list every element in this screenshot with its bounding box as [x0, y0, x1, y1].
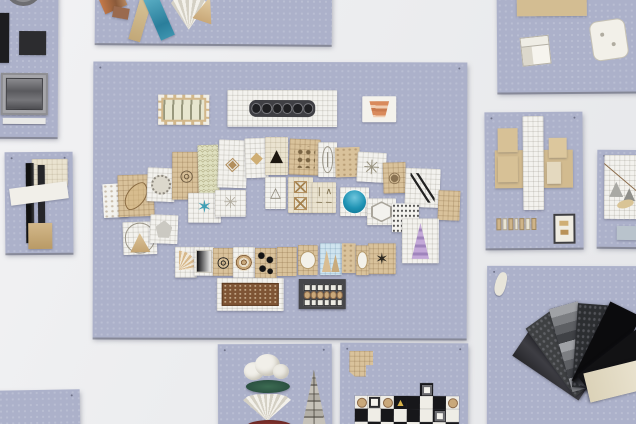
card-lattice	[197, 144, 220, 195]
diagonal-lines	[410, 173, 436, 202]
pentagon-shape	[155, 220, 172, 239]
teal-strip	[142, 0, 175, 41]
pm-symbols: |∧−−	[315, 188, 332, 208]
spool-cell	[336, 299, 343, 306]
wood-block	[28, 223, 52, 249]
spool-5	[336, 291, 343, 298]
checker-spool-icon	[356, 397, 366, 407]
grille-tray	[3, 118, 46, 124]
mini-mark-1	[559, 220, 568, 226]
checkerboard: ▲	[355, 383, 459, 424]
spiral-circle	[235, 254, 253, 272]
pin-dot-0	[493, 271, 495, 273]
strip-cypress	[296, 370, 332, 424]
template-vertical-strip	[522, 116, 544, 210]
pin-dot-1	[458, 67, 460, 69]
pm-sym-3: −	[325, 199, 333, 208]
gasket-bore-1	[262, 103, 272, 114]
x-box-1	[294, 197, 307, 210]
gasket-bore-4	[292, 103, 302, 114]
pin-dot-0	[346, 348, 348, 350]
circuit-panel	[0, 13, 9, 63]
card-right-edge	[437, 190, 460, 221]
pin-dot-1	[459, 348, 461, 350]
mini-square-5	[526, 218, 531, 230]
pinboard-top-color-strips	[95, 0, 333, 45]
gray-sail-1	[609, 182, 623, 197]
card-tan-small	[277, 247, 297, 276]
card-buttons	[288, 138, 320, 175]
gallery-wall-photo: ◎◈◆▲✳◉✶✳△|∧−−✶◎▲	[0, 0, 636, 424]
card-teal-star-glyph: ✶	[197, 199, 212, 217]
checker-cell	[420, 383, 433, 396]
plate-hole-1	[599, 32, 604, 37]
mini-square-0	[496, 218, 501, 230]
card-plus-minus: |∧−−	[312, 182, 336, 213]
template-tab-3	[549, 138, 567, 158]
card-teal-orb	[340, 187, 369, 216]
checker-cell	[433, 396, 446, 409]
framed-mini-card	[553, 214, 575, 244]
card-pentagon	[149, 214, 178, 244]
card-diamond-glyph: ◆	[250, 150, 263, 166]
sail-sketch-sheet	[604, 155, 636, 219]
card-cone: △	[265, 177, 286, 209]
card-ring-frame-glyph: ◎	[180, 168, 194, 184]
white-oval	[357, 251, 368, 269]
small-blue-item	[617, 226, 636, 240]
mini-square-3	[514, 218, 519, 230]
gasket-bore-5	[303, 103, 313, 114]
basket-sketch-card	[362, 96, 396, 122]
spool-4	[330, 291, 337, 298]
purple-tree-shape	[409, 223, 432, 259]
metal-grille	[1, 73, 48, 115]
pinboard-top-right-templates	[497, 0, 636, 93]
pinboard-fan-strips-board	[487, 266, 636, 424]
card-blue-sails	[320, 243, 342, 275]
card-x-boxes	[288, 177, 313, 213]
spool-2	[317, 291, 324, 298]
pinboard-checker-board: ▲	[340, 343, 469, 424]
pyramid	[130, 233, 151, 253]
card-diagonal-lines	[404, 168, 440, 208]
card-tan-gear-glyph: ◉	[388, 170, 402, 185]
checker-cell	[368, 396, 381, 409]
card-scribble-star: ✶	[368, 243, 396, 274]
dots-grid	[293, 146, 315, 168]
gradient-square	[196, 249, 212, 273]
mini-square-2	[508, 218, 513, 230]
cloud-tree-top	[242, 354, 290, 382]
checker-cell	[394, 409, 407, 422]
mini-squares-strip	[496, 218, 536, 230]
sail-2	[331, 255, 339, 273]
pm-sym-1: ∧	[325, 188, 333, 197]
fan-tree-top	[243, 394, 291, 421]
card-bullseye-glyph: ◎	[217, 254, 230, 269]
card-knot: ◈	[217, 139, 248, 188]
checker-cell	[381, 396, 394, 409]
pinboard-sail-sheet-board	[597, 150, 636, 247]
checker-cell	[355, 409, 368, 422]
checker-cell	[407, 409, 420, 422]
dark-disc	[4, 0, 42, 6]
red-base-oval	[246, 420, 292, 424]
pin-dot-0	[490, 117, 492, 119]
hexagon-inner	[373, 203, 391, 221]
pin-dot-0	[224, 349, 226, 351]
card-dark-triangle: ▲	[265, 137, 288, 175]
template-tab-1	[498, 128, 518, 152]
hexagon-outline	[371, 201, 392, 222]
checker-cell: ▲	[394, 396, 407, 409]
card-cone-glyph: △	[270, 186, 281, 200]
spool-cell	[336, 284, 343, 291]
big-dots	[257, 250, 276, 275]
grille-screen	[6, 78, 43, 110]
mini-square-1	[502, 218, 507, 230]
tan-plate	[517, 0, 587, 16]
rounded-plate	[588, 17, 629, 62]
gear-shape	[150, 174, 172, 196]
checker-cell	[446, 409, 459, 422]
card-pinwheel-glyph: ✳	[223, 195, 237, 212]
spool-grid-strip	[299, 279, 346, 309]
spool-0	[304, 291, 311, 298]
plate-hole-2	[611, 42, 616, 47]
engine-gasket-strip	[227, 90, 337, 127]
card-purple-tree	[402, 218, 439, 263]
card-turbine-glyph: ✳	[363, 157, 381, 178]
chip-cluster	[19, 31, 46, 55]
checker-cell	[433, 409, 446, 422]
pin-dot-1	[573, 117, 575, 119]
teal-orb	[343, 190, 366, 213]
mini-square-4	[520, 218, 525, 230]
checker-spool-icon	[382, 397, 392, 407]
pinboard-bottom-left-blank	[0, 389, 80, 424]
oval-outline	[322, 146, 334, 173]
checker-frame-icon	[434, 411, 444, 421]
card-bullseye: ◎	[213, 248, 234, 276]
oval-axis	[327, 152, 328, 168]
pm-sym-2: −	[315, 199, 323, 208]
perf-core	[163, 100, 204, 120]
gasket-bore-0	[251, 103, 261, 114]
card-dark-triangle-glyph: ▲	[270, 147, 283, 164]
checker-spool-icon	[447, 398, 457, 408]
box-sketch	[520, 35, 552, 67]
gasket-bore-2	[272, 103, 282, 114]
checker-frame-icon	[369, 397, 380, 408]
white-crossbar	[9, 181, 69, 205]
pin-dot-1	[71, 394, 73, 396]
cloud-puff-3	[273, 363, 289, 379]
perforated-chip-card	[158, 95, 209, 125]
template-tab-2	[498, 156, 518, 182]
checker-cell	[381, 409, 394, 422]
paper-curl	[493, 271, 508, 297]
pinboard-main-collage: ◎◈◆▲✳◉✶✳△|∧−−✶◎	[93, 62, 468, 339]
card-tan-small-2	[342, 243, 356, 273]
box-top-face	[521, 36, 549, 48]
mini-square-6	[531, 218, 536, 230]
tan-hull-oval	[616, 198, 634, 210]
card-white-oval	[298, 245, 318, 275]
graph-scrap	[349, 351, 373, 377]
card-big-dots	[255, 248, 277, 278]
checker-cell	[420, 409, 433, 422]
card-tan-oval	[356, 245, 369, 275]
checker-cell	[355, 396, 368, 409]
green-base-oval	[246, 380, 290, 393]
template-tab-4	[547, 162, 561, 184]
basket-shape	[368, 101, 390, 118]
card-scribble-star-glyph: ✶	[375, 251, 388, 267]
letterpress-block	[222, 283, 279, 306]
checker-frame-icon	[422, 385, 432, 395]
pin-dot-0	[11, 157, 13, 159]
card-spiral	[233, 247, 255, 278]
pin-dot-1	[323, 349, 325, 351]
checker-cell	[446, 396, 459, 409]
card-knot-glyph: ◈	[225, 154, 240, 174]
card-pinwheel: ✳	[215, 190, 246, 217]
checker-cell	[368, 409, 381, 422]
pinboard-box-template	[484, 112, 583, 249]
gasket-bore-3	[282, 103, 292, 114]
pinboard-trees-board	[218, 344, 333, 424]
letterpress-strip	[217, 278, 284, 311]
pinboard-left-machine-collage	[5, 152, 74, 254]
mini-mark-2	[561, 230, 568, 235]
pin-dot-0	[99, 67, 101, 69]
sail-1	[322, 250, 331, 272]
pinboard-top-left-dark-parts	[0, 0, 58, 137]
card-gradient	[194, 247, 214, 276]
checker-cell	[407, 396, 420, 409]
white-oval	[300, 251, 316, 269]
x-box-0	[294, 181, 307, 194]
checker-triangle-icon: ▲	[397, 398, 403, 406]
card-tan-gear: ◉	[383, 162, 407, 194]
gasket-band	[249, 100, 315, 116]
pm-sym-0: |	[315, 188, 323, 197]
checker-cell	[420, 396, 433, 409]
brown-scrap	[112, 6, 130, 20]
